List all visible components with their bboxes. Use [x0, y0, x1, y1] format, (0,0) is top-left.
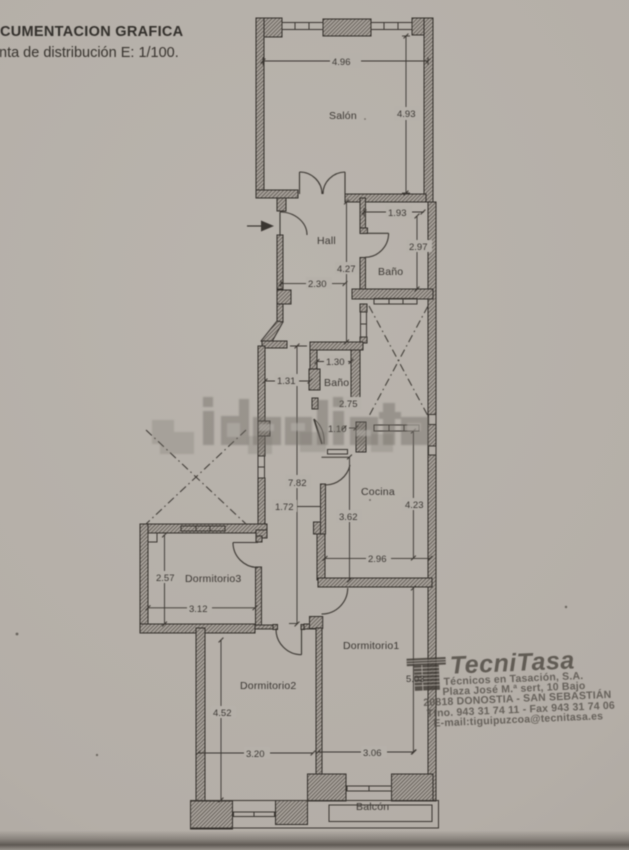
svg-text:1.93: 1.93: [388, 208, 407, 219]
svg-text:2.96: 2.96: [368, 554, 387, 565]
svg-text:Cocina: Cocina: [361, 486, 395, 498]
svg-text:4.96: 4.96: [332, 57, 351, 68]
svg-text:3.06: 3.06: [363, 748, 382, 759]
svg-text:Dormitorio1: Dormitorio1: [343, 640, 399, 652]
svg-text:7.82: 7.82: [288, 478, 307, 489]
svg-text:1.30: 1.30: [326, 357, 345, 368]
svg-text:4.52: 4.52: [213, 708, 232, 719]
svg-text:2.30: 2.30: [308, 279, 327, 290]
svg-text:3.62: 3.62: [339, 512, 358, 523]
svg-text:1.72: 1.72: [275, 502, 294, 513]
svg-text:4.27: 4.27: [337, 264, 356, 275]
svg-text:CUMENTACION GRAFICA: CUMENTACION GRAFICA: [0, 24, 184, 40]
svg-text:3.12: 3.12: [189, 604, 208, 615]
svg-text:1.31: 1.31: [277, 376, 296, 387]
svg-text:Baño: Baño: [324, 377, 349, 389]
svg-text:Dormitorio2: Dormitorio2: [240, 680, 296, 692]
svg-text:Baño: Baño: [378, 266, 403, 278]
svg-text:4.23: 4.23: [405, 500, 424, 511]
svg-text:2.97: 2.97: [409, 242, 428, 253]
svg-text:2.57: 2.57: [156, 573, 175, 584]
svg-text:3.20: 3.20: [246, 749, 265, 760]
svg-text:4.93: 4.93: [397, 109, 416, 120]
svg-text:Hall: Hall: [317, 235, 336, 247]
svg-text:Balcón: Balcón: [356, 801, 389, 813]
svg-text:Dormitorio3: Dormitorio3: [185, 573, 241, 585]
svg-text:Salón: Salón: [329, 110, 357, 122]
svg-text:nta de distribución E: 1/100.: nta de distribución E: 1/100.: [0, 45, 179, 61]
svg-text:5.03: 5.03: [406, 674, 425, 685]
